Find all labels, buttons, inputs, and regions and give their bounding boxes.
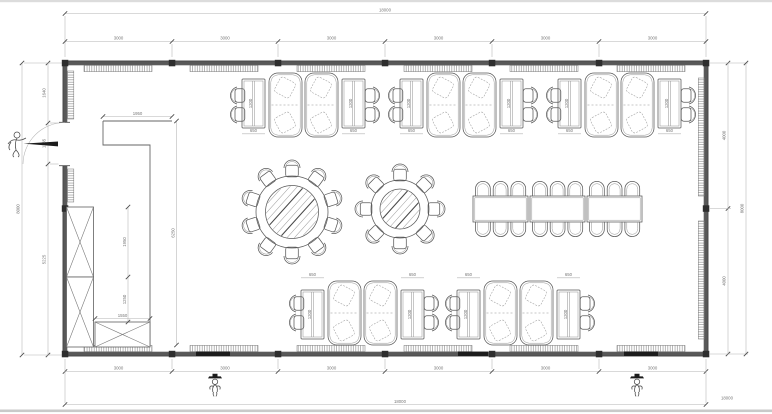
dim-left-overall: 8000 [16,204,21,214]
top-dimension-chain: 18000 3000 3000 3000 3000 3000 3000 [63,8,708,58]
dim-booth-d: 1200 [406,98,411,108]
dim-booth-d: 1200 [664,98,669,108]
dim-counter-run: 6250 [171,228,176,238]
round-table-10-seats [240,160,344,264]
side-entry-door [23,122,70,166]
round-table-8-seats [355,164,445,254]
dim-cabinet-width: 1550 [118,313,128,318]
dim-cabinet-upper: 1950 [122,237,127,247]
banquet-module [473,181,528,236]
cabinet-bottom [95,322,150,347]
page-bottom-rule [0,410,772,413]
dim-booth-w: 650 [508,128,516,133]
dim-right-seg-0: 4000 [722,130,727,140]
dim-booth-d: 1200 [564,98,569,108]
exterior-walls [63,61,708,356]
dim-booth-w: 650 [566,128,574,133]
dim-cabinet-lower: 1250 [122,294,127,304]
dim-top-overall: 18000 [379,8,392,13]
dim-booth-w: 650 [666,128,674,133]
dim-top-seg-2: 3000 [327,35,337,40]
dim-booth-d: 1200 [463,309,468,319]
dim-booth-d: 1200 [407,309,412,319]
dim-booth-d: 1200 [348,98,353,108]
dim-right-overall: 8000 [740,203,745,213]
dim-booth-d: 1200 [563,309,568,319]
cabinet-tall-lower [67,277,94,347]
page-top-rule [0,0,772,2]
dim-booth-w: 650 [408,128,416,133]
banquet-module [530,181,585,236]
dim-bottom-seg-5: 3000 [648,365,658,370]
banquet-module [587,181,642,236]
dim-bottom-seg-0: 3000 [114,365,124,370]
dim-booth-w: 650 [409,272,417,277]
dim-counter-length: 1950 [133,111,143,116]
dim-top-seg-4: 3000 [541,35,551,40]
cabinets: 1950 1250 1550 [67,205,153,347]
dim-booth-d: 1200 [506,98,511,108]
dim-booth-w: 650 [250,128,258,133]
dim-top-seg-0: 3000 [114,35,124,40]
dim-left-seg-2: 5225 [42,254,47,264]
structural-columns [62,60,710,358]
dim-booth-w: 650 [465,272,473,277]
dim-top-seg-3: 3000 [434,35,444,40]
service-counter: 1950 6250 [101,111,179,347]
dim-bottom-seg-2: 3000 [327,365,337,370]
dim-right-seg-1: 4000 [722,276,727,286]
bottom-dimension-chain: 3000 3000 3000 3000 3000 3000 18000 1800… [63,359,734,407]
dim-booth-w: 650 [350,128,358,133]
banquet-table [473,181,642,236]
dim-bottom-overall-end: 18000 [721,396,734,401]
floor-plan-canvas: 18000 3000 3000 3000 3000 3000 3000 3000… [0,0,772,414]
dim-left-seg-0: 1640 [42,88,47,98]
cabinet-tall-upper [67,207,94,277]
person-figure-entrance-1 [208,374,222,397]
dim-bottom-seg-4: 3000 [541,365,551,370]
dim-booth-w: 650 [309,272,317,277]
dim-top-seg-5: 3000 [648,35,658,40]
right-dimension-chain: 4000 4000 8000 [710,61,748,356]
booth-row-bottom [289,281,594,345]
dim-bottom-seg-1: 3000 [220,365,230,370]
person-figure-door [8,132,26,157]
dim-booth-d: 1200 [307,309,312,319]
dim-bottom-seg-3: 3000 [434,365,444,370]
dim-top-seg-1: 3000 [220,35,230,40]
dim-booth-d: 1200 [248,98,253,108]
dim-bottom-overall: 18000 [394,399,407,404]
booth-row-top [230,73,695,137]
left-dimension-chain: 1640 1135 5225 8000 [16,61,63,357]
window-strips [68,65,705,351]
dim-booth-w: 650 [565,272,573,277]
person-figure-entrance-2 [630,374,644,397]
